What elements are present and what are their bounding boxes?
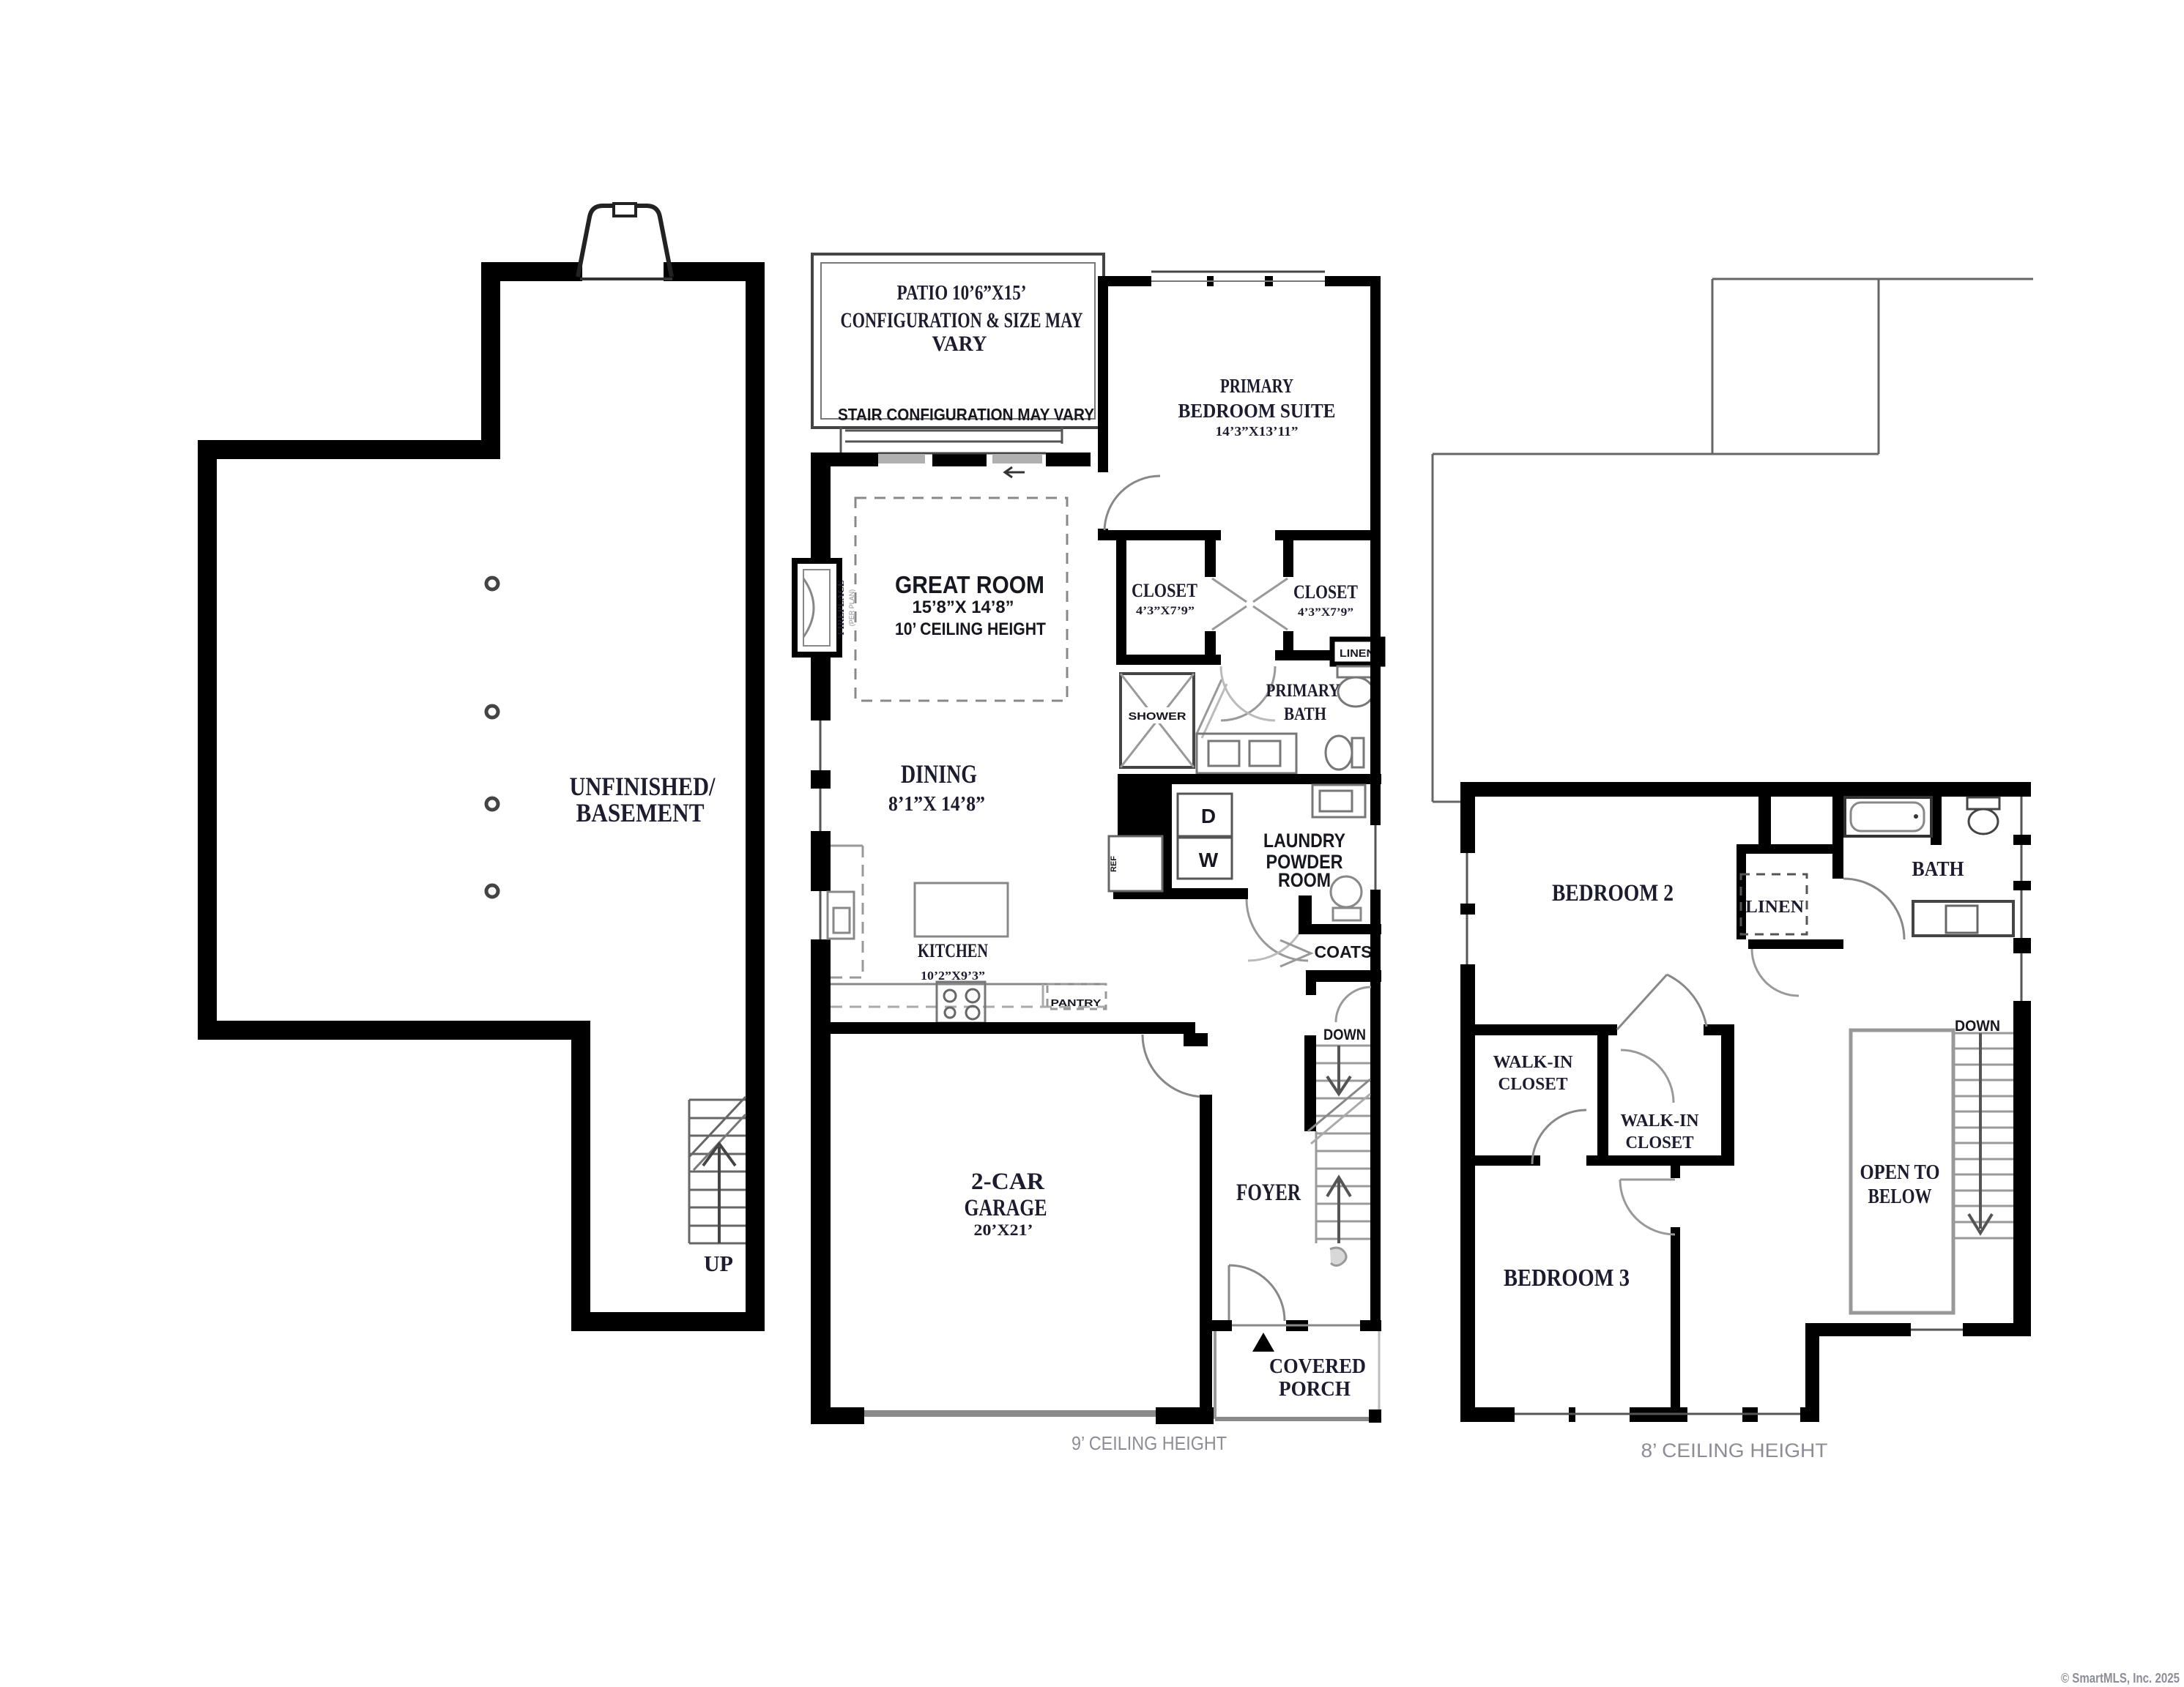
svg-text:4’3”X7’9”: 4’3”X7’9” bbox=[1136, 605, 1195, 617]
svg-text:CLOSET: CLOSET bbox=[1626, 1133, 1694, 1152]
svg-text:BASEMENT: BASEMENT bbox=[576, 798, 705, 827]
svg-text:8’1”X 14’8”: 8’1”X 14’8” bbox=[888, 793, 985, 816]
svg-text:FOYER: FOYER bbox=[1236, 1180, 1301, 1206]
svg-text:© SmartMLS, Inc. 2025: © SmartMLS, Inc. 2025 bbox=[2061, 1671, 2180, 1686]
svg-text:15’8”X 14’8”: 15’8”X 14’8” bbox=[913, 597, 1014, 617]
svg-text:PANTRY: PANTRY bbox=[1051, 997, 1102, 1008]
svg-text:STAIR CONFIGURATION MAY VARY: STAIR CONFIGURATION MAY VARY bbox=[838, 405, 1094, 424]
svg-text:PRIMARY: PRIMARY bbox=[1220, 375, 1293, 397]
svg-text:10’2”X9’3”: 10’2”X9’3” bbox=[921, 969, 985, 983]
svg-text:CONFIGURATION & SIZE MAY: CONFIGURATION & SIZE MAY bbox=[841, 308, 1083, 332]
svg-text:PORCH: PORCH bbox=[1279, 1377, 1351, 1401]
svg-text:D: D bbox=[1201, 805, 1216, 827]
svg-text:UP: UP bbox=[704, 1251, 733, 1276]
svg-text:PRIMARY: PRIMARY bbox=[1266, 681, 1340, 701]
svg-text:9’ CEILING HEIGHT: 9’ CEILING HEIGHT bbox=[1071, 1432, 1227, 1454]
svg-text:BATH: BATH bbox=[1912, 858, 1964, 881]
svg-text:UNFINISHED/: UNFINISHED/ bbox=[570, 772, 716, 801]
svg-text:BEDROOM 3: BEDROOM 3 bbox=[1504, 1265, 1630, 1292]
svg-text:DINING: DINING bbox=[901, 759, 977, 789]
svg-text:CLOSET: CLOSET bbox=[1293, 581, 1358, 603]
svg-text:4’3”X7’9”: 4’3”X7’9” bbox=[1298, 606, 1353, 619]
svg-text:KITCHEN: KITCHEN bbox=[918, 940, 988, 961]
svg-text:VARY: VARY bbox=[932, 332, 987, 356]
svg-text:REF: REF bbox=[1110, 856, 1118, 872]
svg-text:BEDROOM 2: BEDROOM 2 bbox=[1552, 880, 1674, 906]
svg-text:LINEN: LINEN bbox=[1745, 898, 1805, 917]
svg-text:SHOWER: SHOWER bbox=[1129, 710, 1186, 723]
svg-text:20’X21’: 20’X21’ bbox=[974, 1221, 1033, 1239]
svg-text:WALK-IN: WALK-IN bbox=[1621, 1111, 1700, 1131]
svg-text:GREAT ROOM: GREAT ROOM bbox=[895, 571, 1044, 598]
svg-text:LINEN: LINEN bbox=[1340, 647, 1375, 660]
svg-text:W: W bbox=[1199, 849, 1219, 871]
svg-text:WALK-IN: WALK-IN bbox=[1493, 1053, 1574, 1072]
svg-text:CLOSET: CLOSET bbox=[1132, 580, 1197, 601]
svg-text:COATS: COATS bbox=[1315, 942, 1373, 961]
svg-text:LAUNDRY: LAUNDRY bbox=[1263, 830, 1345, 852]
svg-text:BATH: BATH bbox=[1284, 704, 1326, 724]
svg-text:2-CAR: 2-CAR bbox=[971, 1169, 1045, 1195]
svg-text:ROOM: ROOM bbox=[1278, 869, 1331, 891]
svg-text:10’ CEILING HEIGHT: 10’ CEILING HEIGHT bbox=[895, 619, 1046, 639]
svg-text:DOWN: DOWN bbox=[1323, 1027, 1366, 1043]
svg-text:BEDROOM SUITE: BEDROOM SUITE bbox=[1178, 400, 1336, 422]
svg-text:CLOSET: CLOSET bbox=[1498, 1075, 1568, 1094]
svg-text:14’3”X13’11”: 14’3”X13’11” bbox=[1216, 424, 1299, 439]
svg-text:DOWN: DOWN bbox=[1955, 1018, 2000, 1035]
svg-text:OPEN TO: OPEN TO bbox=[1860, 1161, 1940, 1184]
svg-text:BELOW: BELOW bbox=[1868, 1185, 1932, 1208]
svg-text:PATIO 10’6”X15’: PATIO 10’6”X15’ bbox=[897, 282, 1027, 305]
svg-text:FIREPLACE: FIREPLACE bbox=[835, 580, 846, 635]
svg-text:COVERED: COVERED bbox=[1269, 1355, 1366, 1378]
svg-text:GARAGE: GARAGE bbox=[965, 1195, 1047, 1221]
svg-text:8’ CEILING HEIGHT: 8’ CEILING HEIGHT bbox=[1641, 1440, 1828, 1461]
